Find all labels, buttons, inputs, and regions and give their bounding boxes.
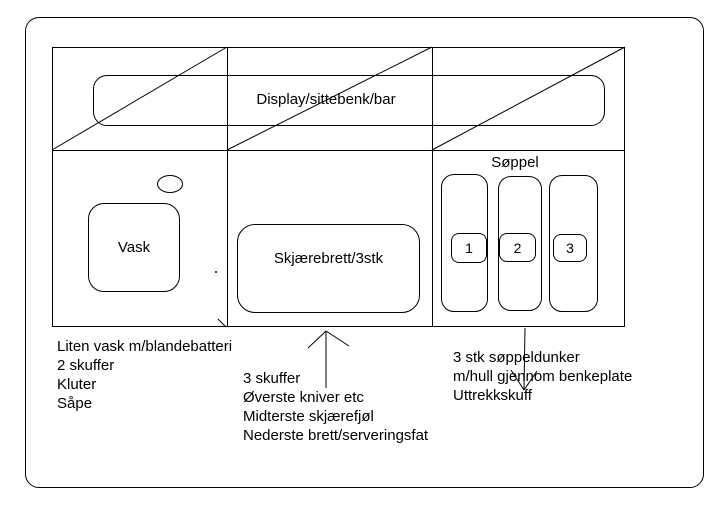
waste-note: 3 stk søppeldunker m/hull gjennom benkep… bbox=[453, 348, 632, 405]
waste-section-label: Søppel bbox=[432, 153, 598, 172]
waste-bin-1-number: 1 bbox=[451, 233, 487, 263]
cutting-board-shape: Skjærebrett/3stk bbox=[237, 224, 420, 313]
sink-note-line: Liten vask m/blandebatteri bbox=[57, 337, 232, 356]
cutting-board-label: Skjærebrett/3stk bbox=[274, 250, 383, 267]
bin-3-number-text: 3 bbox=[566, 240, 574, 256]
drawers-note-line: Nederste brett/serveringsfat bbox=[243, 426, 428, 445]
waste-note-line: Uttrekkskuff bbox=[453, 386, 632, 405]
sink-note: Liten vask m/blandebatteri 2 skuffer Klu… bbox=[57, 337, 232, 413]
bin-1-number-text: 1 bbox=[465, 240, 473, 256]
faucet-ellipse bbox=[157, 175, 183, 193]
sink-label: Vask bbox=[118, 239, 150, 256]
display-bar-label: Display/sittebenk/bar bbox=[228, 90, 424, 110]
header-row-divider bbox=[52, 150, 625, 151]
waste-bin-2-number: 2 bbox=[499, 233, 536, 262]
waste-bin-3-number: 3 bbox=[553, 234, 587, 262]
bin-2-number-text: 2 bbox=[514, 240, 522, 256]
drawers-note-line: Øverste kniver etc bbox=[243, 388, 428, 407]
waste-note-line: m/hull gjennom benkeplate bbox=[453, 367, 632, 386]
sink-note-line: Såpe bbox=[57, 394, 232, 413]
sink-note-line: Kluter bbox=[57, 375, 232, 394]
drawers-note-line: Midterste skjærefjøl bbox=[243, 407, 428, 426]
drawers-note-line: 3 skuffer bbox=[243, 369, 428, 388]
stray-dot bbox=[215, 271, 217, 273]
sink-shape: Vask bbox=[88, 203, 180, 292]
waste-note-line: 3 stk søppeldunker bbox=[453, 348, 632, 367]
sink-note-line: 2 skuffer bbox=[57, 356, 232, 375]
drawers-note: 3 skuffer Øverste kniver etc Midterste s… bbox=[243, 369, 428, 445]
